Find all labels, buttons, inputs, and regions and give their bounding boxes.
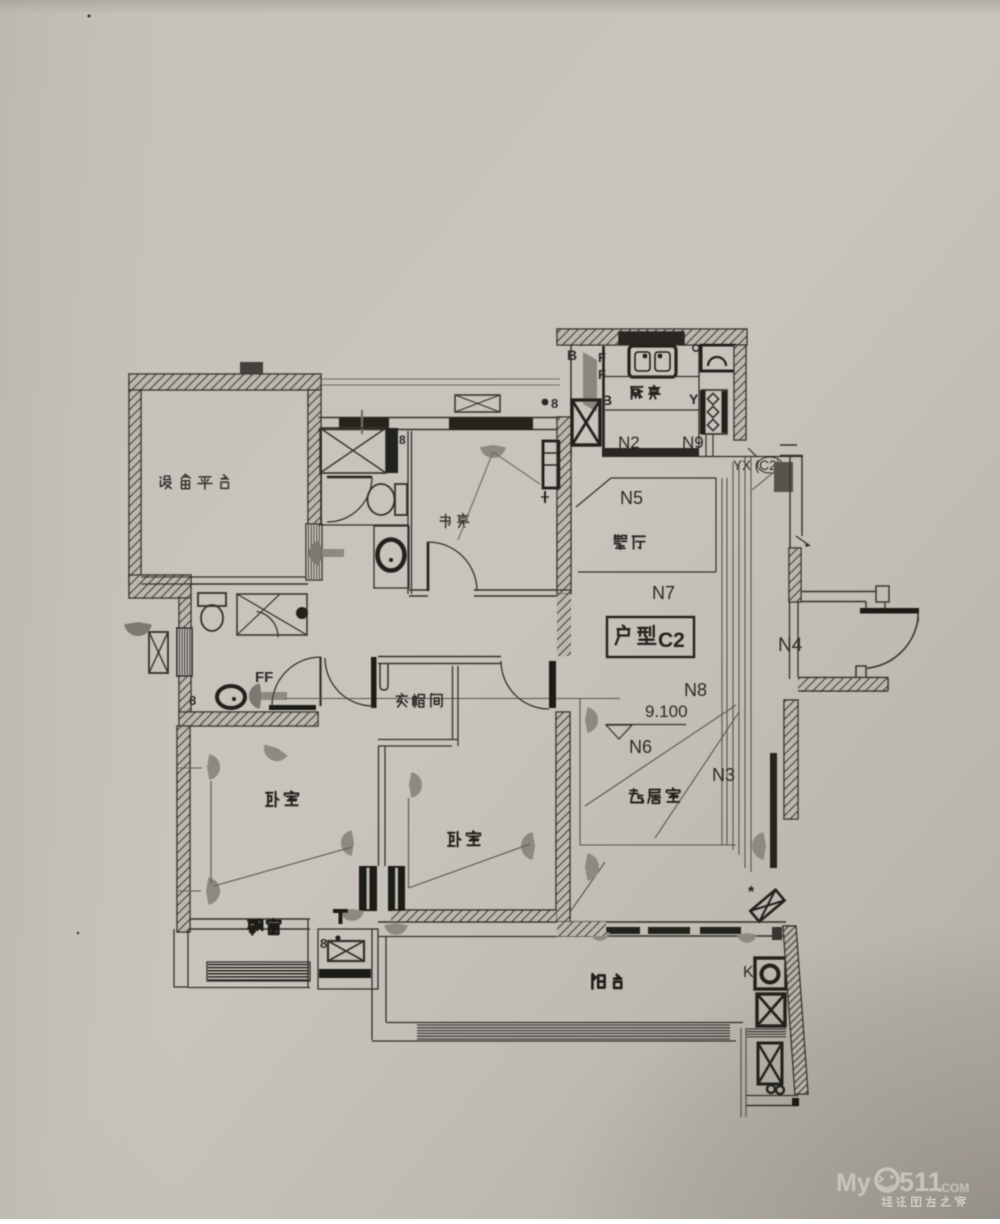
svg-text:B: B	[567, 347, 577, 363]
svg-text:Y: Y	[689, 391, 699, 407]
svg-text:8: 8	[189, 693, 196, 708]
svg-text:8: 8	[320, 936, 327, 951]
svg-text:N8: N8	[684, 680, 707, 700]
svg-text:C2: C2	[658, 629, 685, 652]
svg-text:K: K	[743, 964, 754, 981]
svg-text:*: *	[748, 884, 755, 901]
svg-text:.COM: .COM	[938, 1181, 969, 1195]
svg-text:N3: N3	[712, 765, 735, 785]
svg-text:N4: N4	[778, 635, 803, 656]
svg-text:N5: N5	[620, 488, 643, 508]
svg-text:N7: N7	[652, 583, 675, 603]
svg-text:9.100: 9.100	[645, 702, 688, 721]
svg-text:8: 8	[399, 433, 406, 447]
svg-text:YX (C2): YX (C2)	[733, 458, 781, 473]
svg-text:F: F	[598, 367, 606, 382]
svg-text:F: F	[598, 350, 606, 365]
svg-text:511: 511	[899, 1167, 943, 1197]
svg-text:8: 8	[551, 396, 558, 411]
svg-text:B: B	[602, 392, 612, 408]
svg-text:My: My	[836, 1169, 871, 1197]
svg-text:FF: FF	[255, 669, 273, 686]
svg-text:N6: N6	[629, 737, 652, 757]
